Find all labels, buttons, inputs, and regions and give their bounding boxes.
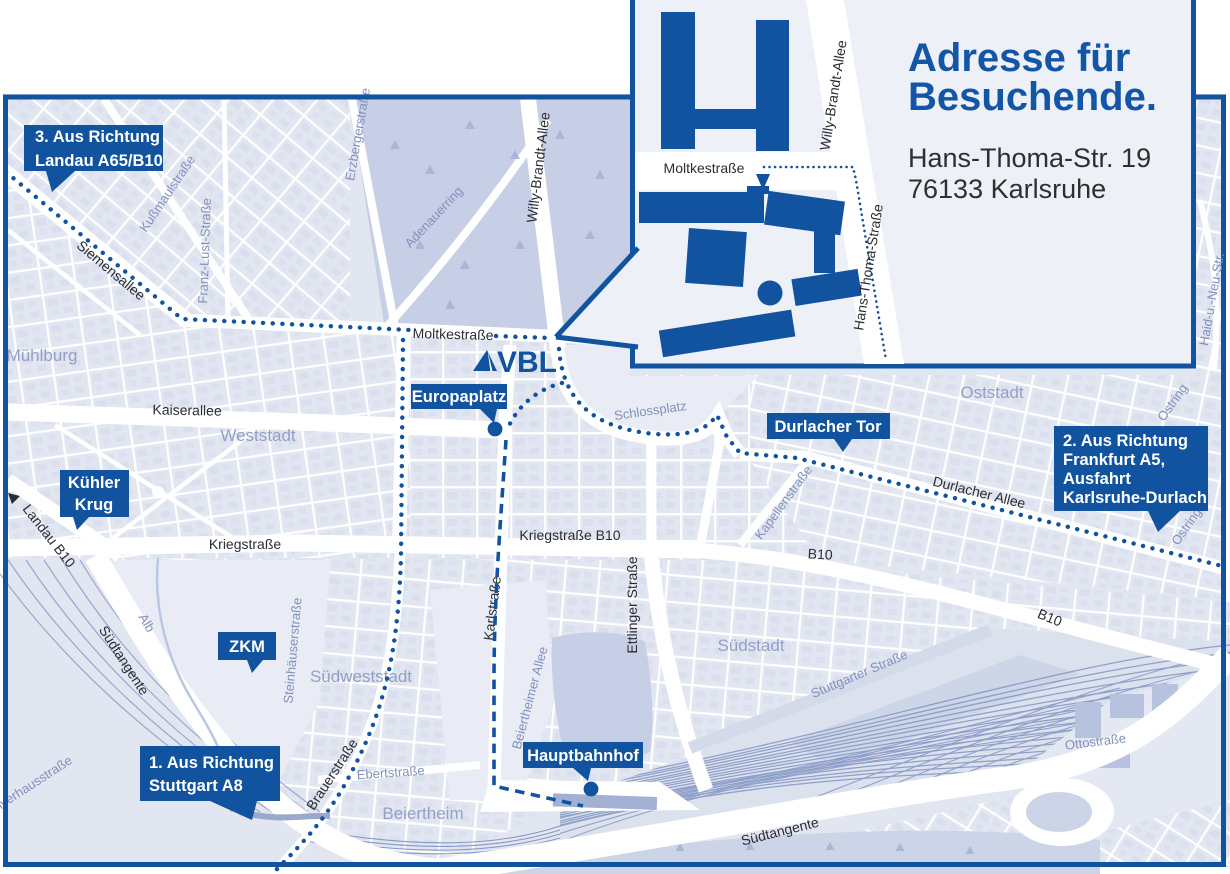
svg-text:Krug: Krug — [75, 496, 114, 514]
svg-text:Karlsruhe-Durlach: Karlsruhe-Durlach — [1063, 489, 1207, 507]
svg-text:Südweststadt: Südweststadt — [310, 667, 412, 686]
svg-text:Moltkestraße: Moltkestraße — [412, 325, 494, 343]
svg-text:Weststadt: Weststadt — [220, 426, 296, 445]
svg-text:Durlacher Tor: Durlacher Tor — [775, 418, 883, 436]
svg-text:Hauptbahnhof: Hauptbahnhof — [527, 747, 639, 765]
svg-text:Kriegstraße: Kriegstraße — [209, 536, 282, 552]
svg-text:B10: B10 — [807, 545, 833, 562]
svg-text:3. Aus Richtung: 3. Aus Richtung — [35, 128, 160, 146]
svg-text:Adresse für: Adresse für — [908, 36, 1130, 80]
svg-text:1. Aus Richtung: 1. Aus Richtung — [149, 754, 274, 772]
svg-text:Besuchende.: Besuchende. — [908, 75, 1157, 119]
svg-text:Kriegstraße B10: Kriegstraße B10 — [519, 527, 620, 543]
svg-text:Mühlburg: Mühlburg — [7, 346, 78, 365]
svg-text:ZKM: ZKM — [229, 638, 265, 656]
svg-text:Oststadt: Oststadt — [960, 383, 1024, 402]
svg-text:VBL: VBL — [497, 346, 557, 379]
svg-text:Frankfurt A5,: Frankfurt A5, — [1063, 451, 1165, 469]
svg-text:Kaiserallee: Kaiserallee — [152, 401, 222, 418]
svg-text:Moltkestraße: Moltkestraße — [664, 160, 745, 176]
svg-text:Kühler: Kühler — [68, 474, 121, 492]
svg-text:76133 Karlsruhe: 76133 Karlsruhe — [908, 174, 1106, 204]
svg-text:Südstadt: Südstadt — [717, 636, 784, 655]
svg-text:Landau A65/B10: Landau A65/B10 — [35, 152, 163, 170]
svg-text:Beiertheim: Beiertheim — [382, 804, 463, 823]
svg-text:Ettlinger Straße: Ettlinger Straße — [624, 556, 640, 653]
svg-text:2. Aus Richtung: 2. Aus Richtung — [1063, 432, 1188, 450]
svg-text:Europaplatz: Europaplatz — [412, 388, 506, 406]
svg-text:Hans-Thoma-Str. 19: Hans-Thoma-Str. 19 — [908, 143, 1151, 173]
svg-text:Stuttgart A8: Stuttgart A8 — [149, 777, 243, 795]
svg-text:Ausfahrt: Ausfahrt — [1063, 470, 1131, 488]
